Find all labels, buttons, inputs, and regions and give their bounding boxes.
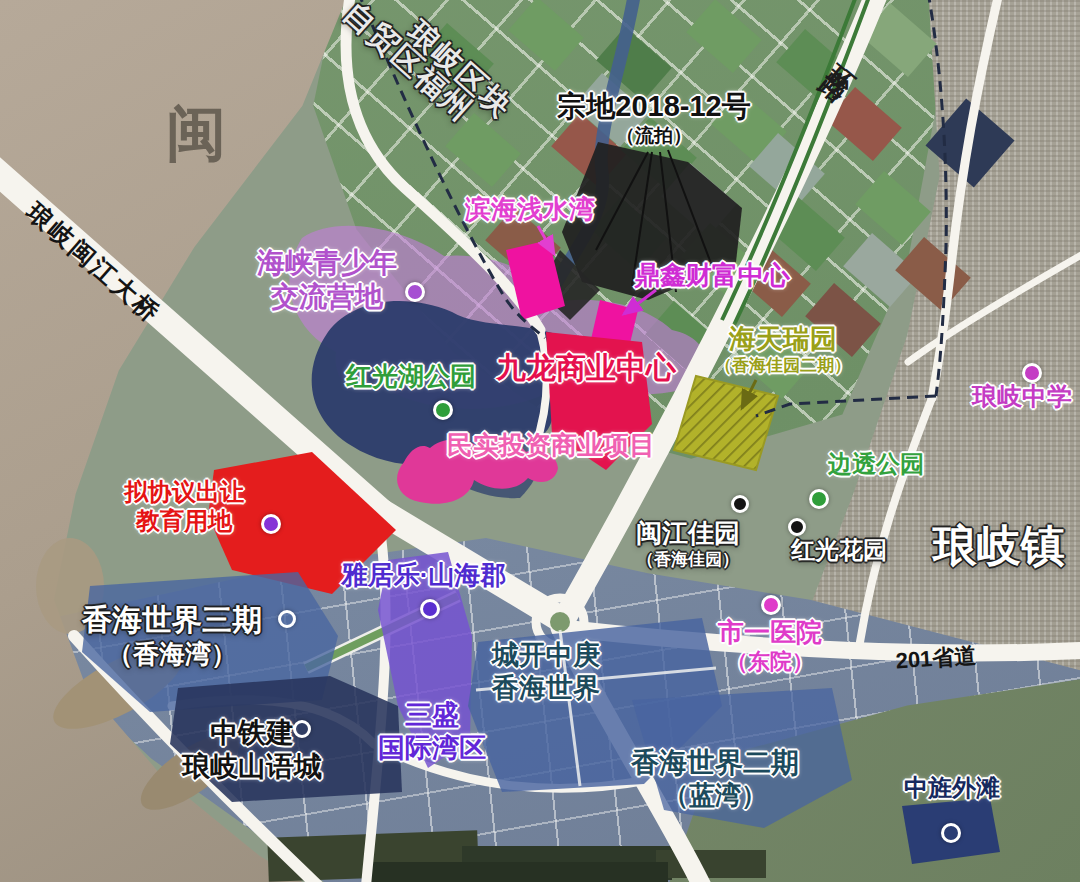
label-ztj-langqi-shanyucheng-line2: 琅岐山语城 — [182, 750, 322, 784]
dot-shiyi-hospital — [761, 595, 781, 615]
label-hongguang-lake-park-line1: 红光湖公园 — [346, 361, 476, 393]
dot-zhongjing-waitan — [941, 823, 961, 843]
label-parcel-2018-12-line1: 宗地2018-12号 — [557, 89, 750, 124]
label-haitian-ruiyuan-line1: 海天瑞园 — [715, 323, 851, 356]
label-langqi-town-line1: 琅岐镇 — [933, 519, 1065, 573]
label-xianghai-world-3-line1: 香海世界三期 — [82, 602, 262, 639]
label-sansheng-intl-bay-line2: 国际湾区 — [378, 732, 486, 765]
label-biantou-park: 边透公园 — [828, 449, 924, 478]
label-dingxin-wealth-center-line1: 鼎鑫财富中心 — [634, 260, 790, 292]
label-minjiang-jiayuan: 闽江佳园（香海佳园） — [636, 518, 740, 570]
label-langqi-minjiang-bridge: 琅岐闽江大桥 — [21, 196, 168, 329]
label-min-river-watermark-line1: 闽 — [166, 97, 226, 170]
dot-ztj-langqi-shanyucheng — [293, 720, 311, 738]
label-s201-line1: 201省道 — [895, 643, 977, 675]
label-hongguang-garden: 红光花园 — [791, 535, 887, 564]
label-education-land: 拟协议出让教育用地 — [124, 477, 244, 536]
label-hongguang-garden-line1: 红光花园 — [791, 535, 887, 564]
label-huandao-road-line1: 环岛路 — [839, 44, 873, 76]
label-shiyi-hospital-line1: 市一医院 — [718, 617, 822, 649]
dot-minjiang-jiayuan — [731, 495, 749, 513]
label-dingxin-wealth-center: 鼎鑫财富中心 — [634, 260, 790, 292]
label-xianghai-world-2-line1: 香海世界二期 — [631, 746, 799, 780]
label-yajule-shanhaijun: 雅居乐·山海郡 — [342, 560, 507, 592]
label-sansheng-intl-bay-line1: 三盛 — [378, 699, 486, 732]
label-zhongjing-waitan: 中旌外滩 — [904, 773, 1000, 802]
label-minjiang-jiayuan-line2: （香海佳园） — [636, 549, 740, 570]
label-langqi-middle-school-line1: 琅岐中学 — [972, 381, 1072, 412]
label-huandao-road: 环岛路 — [839, 44, 873, 76]
label-yajule-shanhaijun-line1: 雅居乐·山海郡 — [342, 560, 507, 592]
label-s201: 201省道 — [895, 643, 977, 675]
label-min-river-watermark: 闽 — [166, 97, 226, 170]
label-chengkai-zhonggeng-line2: 香海世界 — [492, 672, 600, 705]
label-langqi-town: 琅岐镇 — [933, 519, 1065, 573]
label-minshi-commercial: 民实投资商业项目 — [447, 430, 655, 462]
dot-xianghai-world-3 — [278, 610, 296, 628]
label-xianghai-world-3: 香海世界三期（香海湾） — [82, 602, 262, 670]
label-sansheng-intl-bay: 三盛国际湾区 — [378, 699, 486, 765]
dot-langqi-middle-school — [1022, 363, 1042, 383]
label-haixia-youth-camp: 海峡青少年交流营地 — [257, 246, 397, 314]
label-chengkai-zhonggeng-line1: 城开中庚 — [492, 639, 600, 672]
label-jiulong-business-center-line1: 九龙商业中心 — [496, 350, 676, 387]
label-parcel-2018-12-line2: （流拍） — [557, 124, 750, 147]
label-xianghai-world-3-line2: （香海湾） — [82, 638, 262, 670]
label-haixia-youth-camp-line1: 海峡青少年 — [257, 246, 397, 280]
label-education-land-line2: 教育用地 — [124, 506, 244, 535]
satellite-map: 闽自贸区福州琅岐区块宗地2018-12号（流拍）环岛路滨海浅水湾海峡青少年交流营… — [0, 0, 1080, 882]
dot-biantou-park — [809, 489, 829, 509]
dot-education-land — [261, 514, 281, 534]
label-jiulong-business-center: 九龙商业中心 — [496, 350, 676, 387]
label-minshi-commercial-line1: 民实投资商业项目 — [447, 430, 655, 462]
label-shiyi-hospital: 市一医院（东院） — [718, 617, 822, 676]
label-xianghai-world-2: 香海世界二期（蓝湾） — [631, 746, 799, 812]
label-parcel-2018-12: 宗地2018-12号（流拍） — [557, 89, 750, 148]
label-binhai-qianshuiwan: 滨海浅水湾 — [465, 194, 595, 226]
label-langqi-minjiang-bridge-line1: 琅岐闽江大桥 — [21, 196, 168, 329]
label-xianghai-world-2-line2: （蓝湾） — [631, 780, 799, 812]
label-shiyi-hospital-line2: （东院） — [718, 648, 822, 675]
label-haixia-youth-camp-line2: 交流营地 — [257, 280, 397, 314]
label-zhongjing-waitan-line1: 中旌外滩 — [904, 773, 1000, 802]
label-biantou-park-line1: 边透公园 — [828, 449, 924, 478]
label-hongguang-lake-park: 红光湖公园 — [346, 361, 476, 393]
label-binhai-qianshuiwan-line1: 滨海浅水湾 — [465, 194, 595, 226]
map-labels: 闽自贸区福州琅岐区块宗地2018-12号（流拍）环岛路滨海浅水湾海峡青少年交流营… — [0, 0, 1080, 882]
label-haitian-ruiyuan-line2: （香海佳园二期） — [715, 356, 851, 377]
label-chengkai-zhonggeng: 城开中庚香海世界 — [492, 639, 600, 705]
dot-hongguang-garden — [788, 518, 806, 536]
dot-yajule-shanhaijun — [420, 599, 440, 619]
label-education-land-line1: 拟协议出让 — [124, 477, 244, 506]
label-haitian-ruiyuan: 海天瑞园（香海佳园二期） — [715, 323, 851, 377]
dot-haixia-youth-camp — [405, 282, 425, 302]
label-minjiang-jiayuan-line1: 闽江佳园 — [636, 518, 740, 550]
label-langqi-middle-school: 琅岐中学 — [972, 381, 1072, 412]
dot-hongguang-lake-park — [433, 400, 453, 420]
